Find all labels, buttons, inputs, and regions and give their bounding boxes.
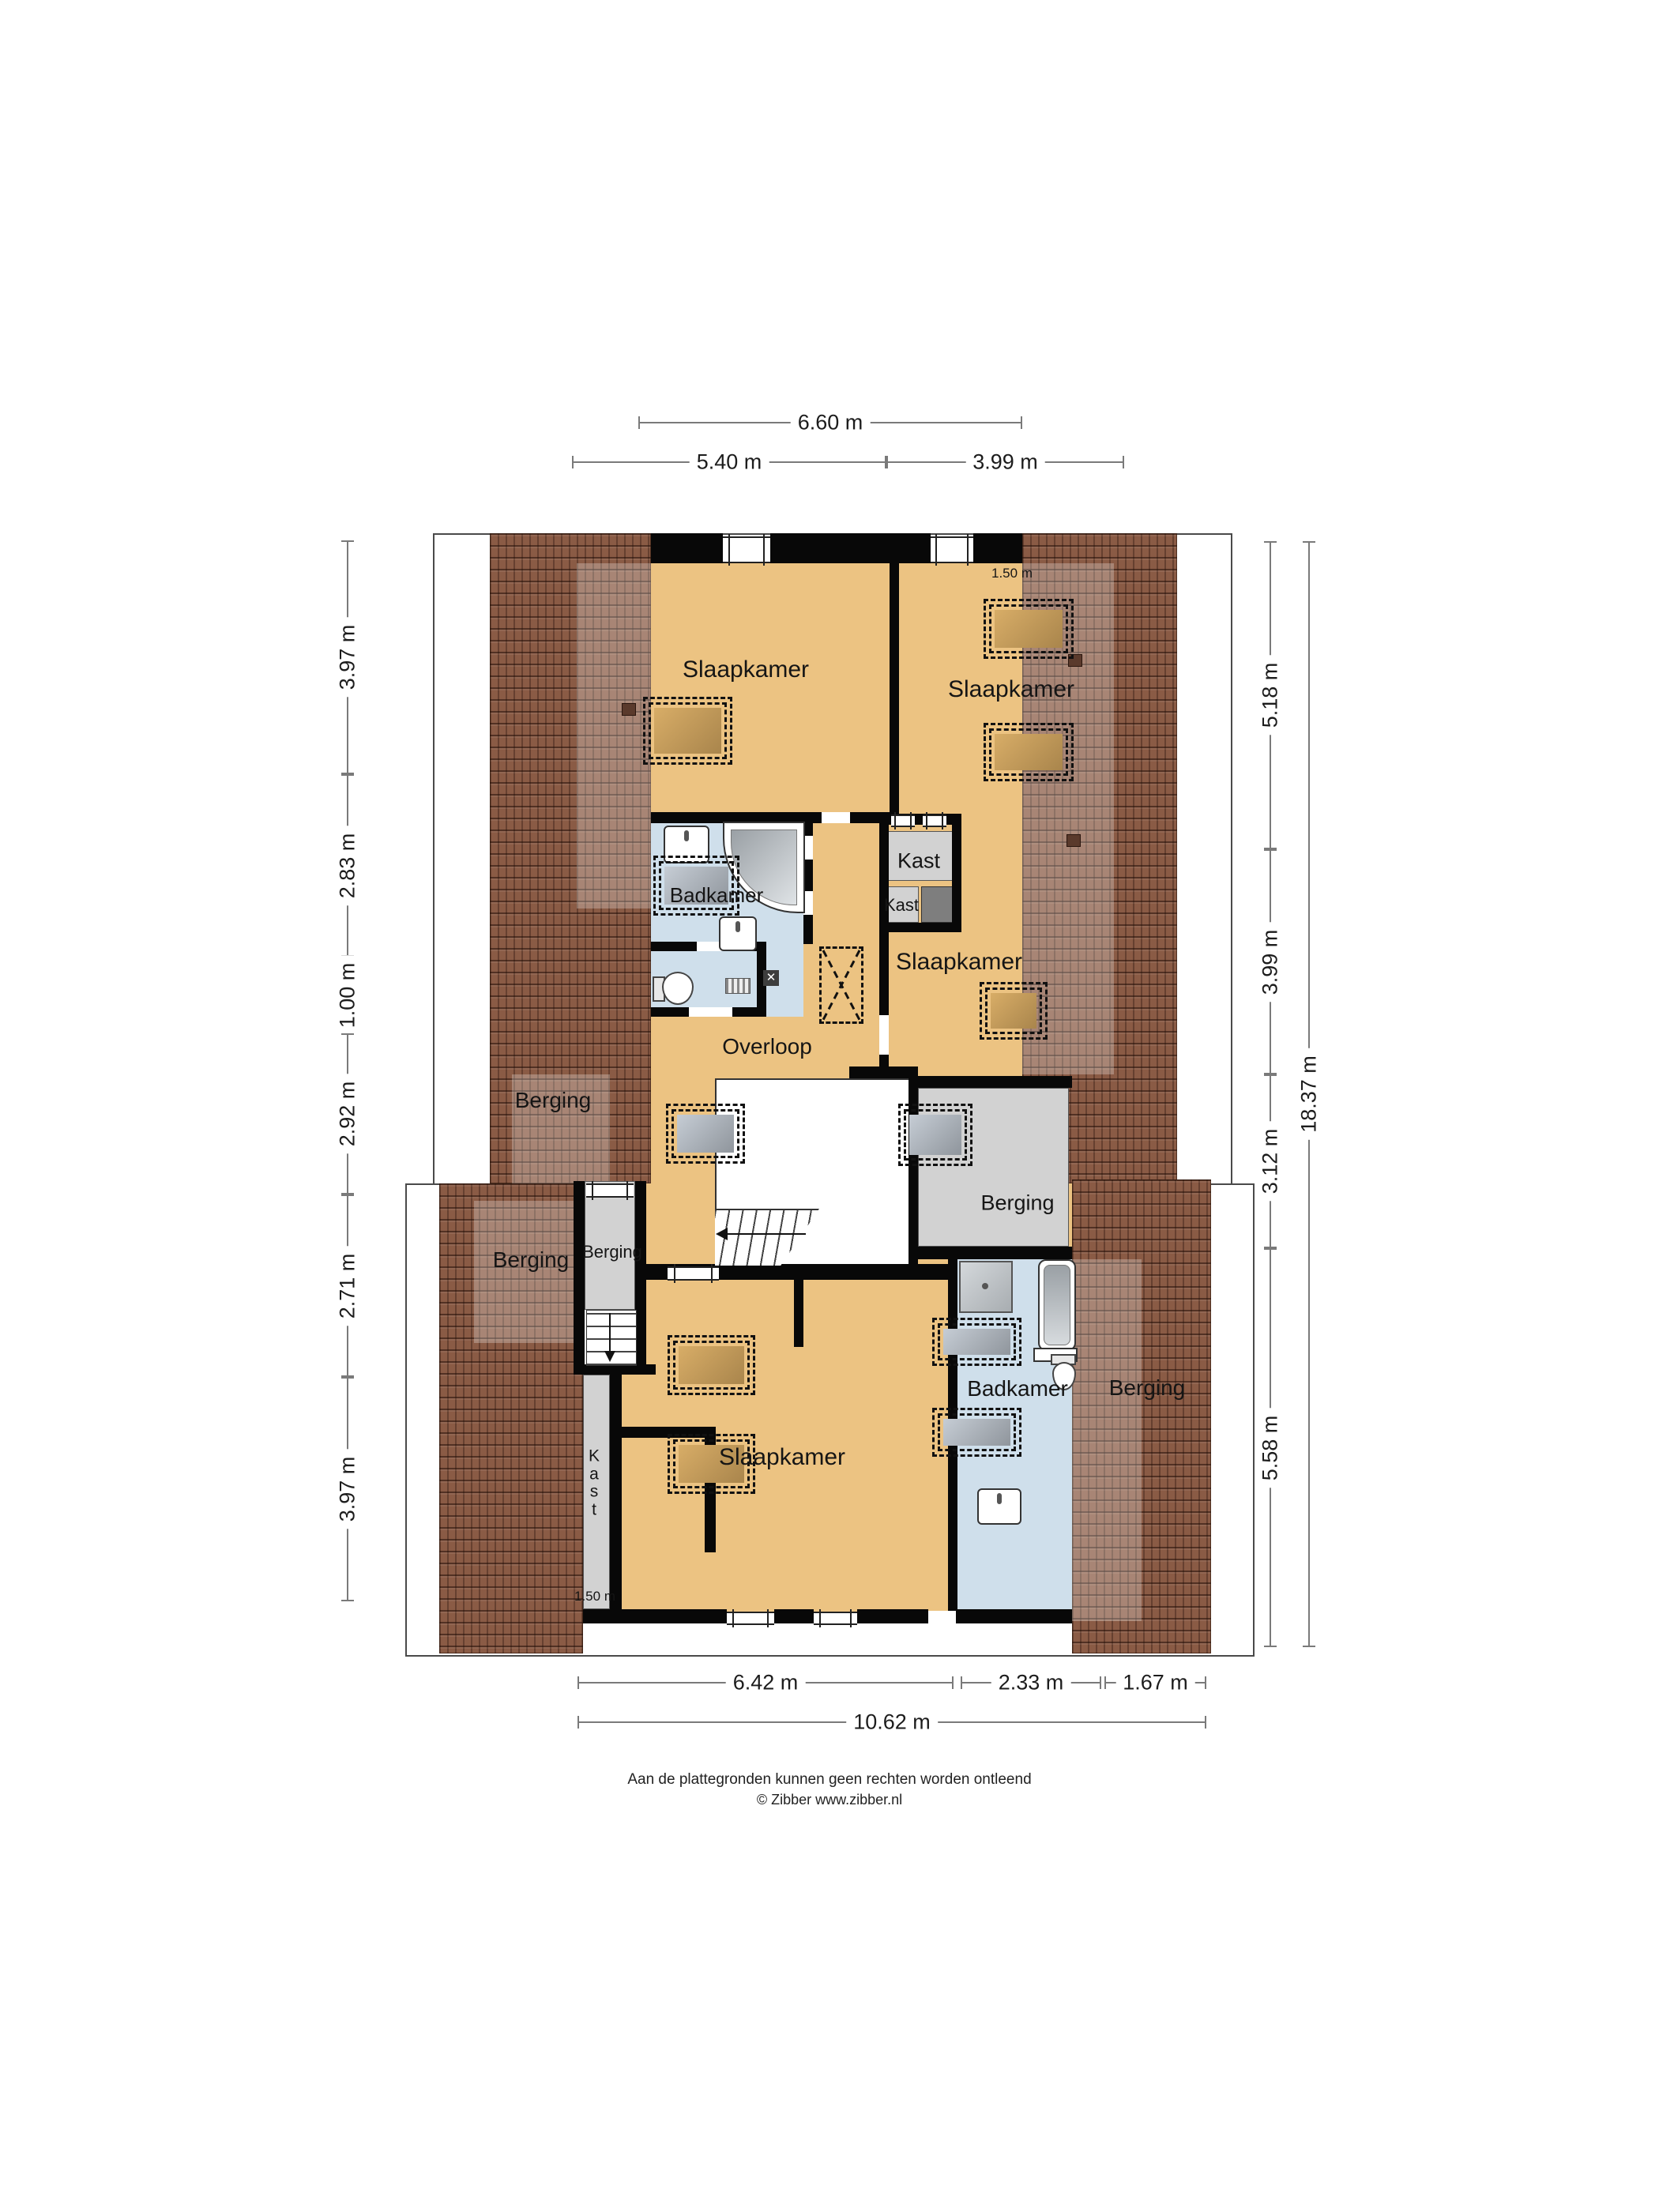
dimension-line bbox=[341, 1033, 354, 1035]
roof-window-dot bbox=[1066, 834, 1081, 847]
page: { "title": "Floor plan - attic storey", … bbox=[0, 0, 1659, 2212]
dimension-line bbox=[1100, 1676, 1101, 1689]
dimension-label: 2.92 m bbox=[336, 1074, 360, 1154]
dimension-line bbox=[1104, 1676, 1106, 1689]
room-label: Kast bbox=[884, 896, 919, 915]
window bbox=[891, 814, 915, 827]
dimension: 5.18 m bbox=[1259, 541, 1281, 849]
dimension: 2.92 m bbox=[337, 1033, 359, 1194]
wall bbox=[770, 533, 931, 563]
wall bbox=[651, 942, 697, 951]
dimension-label: 3.99 m bbox=[1258, 922, 1283, 1002]
dimension-line bbox=[638, 416, 640, 429]
sink-icon bbox=[977, 1488, 1021, 1525]
dimension-label: 10.62 m bbox=[846, 1710, 938, 1735]
tap bbox=[997, 1493, 1002, 1504]
dimension: 2.33 m bbox=[961, 1672, 1101, 1694]
dimension-line bbox=[1205, 1676, 1206, 1689]
wall bbox=[794, 1280, 803, 1347]
room-label: Berging bbox=[980, 1191, 1054, 1214]
window bbox=[668, 1266, 719, 1281]
skylight bbox=[668, 1335, 755, 1395]
floor-plan: ✕ SlaapkamerSlaapkamerSlaapkamerSlaapkam… bbox=[0, 0, 1659, 2212]
dimension: 3.97 m bbox=[337, 540, 359, 774]
room-label: Kast bbox=[897, 849, 940, 872]
room-label: 1.50 m bbox=[991, 566, 1033, 581]
dimension-label: 3.99 m bbox=[965, 450, 1045, 475]
door-opening bbox=[879, 1015, 889, 1055]
skylight bbox=[643, 697, 732, 765]
wall bbox=[908, 1247, 1072, 1259]
arrow-left-icon bbox=[716, 1228, 728, 1240]
skylight-glass bbox=[654, 708, 721, 754]
dimension-line bbox=[572, 456, 574, 468]
dimension: 5.40 m bbox=[572, 451, 886, 473]
dimension: 3.97 m bbox=[337, 1377, 359, 1601]
skylight bbox=[932, 1408, 1021, 1457]
door-opening bbox=[822, 812, 850, 823]
bathtub-basin bbox=[1044, 1265, 1070, 1345]
dimension-line bbox=[341, 774, 354, 776]
room-label: Slaapkamer bbox=[896, 950, 1022, 975]
wall bbox=[849, 1066, 918, 1078]
dimension: 2.83 m bbox=[337, 774, 359, 957]
room-label: Badkamer bbox=[670, 884, 764, 906]
skylight bbox=[984, 723, 1074, 781]
dimension-label: 6.60 m bbox=[791, 411, 871, 435]
stairs-small-arrow bbox=[609, 1313, 611, 1351]
arrow-down-icon bbox=[604, 1351, 615, 1362]
room-label: Berging bbox=[515, 1089, 592, 1112]
wall bbox=[857, 1609, 928, 1623]
dimension-label: 2.33 m bbox=[991, 1671, 1071, 1695]
fan-icon: ✕ bbox=[763, 970, 779, 986]
skylight bbox=[984, 599, 1074, 659]
roof-hatch-x bbox=[819, 946, 863, 1024]
radiator-icon bbox=[725, 978, 750, 994]
dimension-label: 1.67 m bbox=[1115, 1671, 1195, 1695]
skylight bbox=[932, 1318, 1021, 1366]
dimension: 6.42 m bbox=[577, 1672, 954, 1694]
wall bbox=[952, 814, 961, 932]
dimension: 3.99 m bbox=[1259, 849, 1281, 1074]
wall bbox=[774, 1609, 814, 1623]
room-kast-dark bbox=[921, 886, 954, 923]
dimension-label: 3.12 m bbox=[1258, 1122, 1283, 1202]
dimension-line bbox=[341, 1600, 354, 1601]
shower-drain bbox=[982, 1283, 988, 1289]
dimension-line bbox=[1303, 1646, 1315, 1647]
shower-icon bbox=[959, 1261, 1013, 1313]
dimension: 6.60 m bbox=[638, 412, 1022, 434]
dimension: 3.12 m bbox=[1259, 1074, 1281, 1248]
wall bbox=[918, 1076, 1072, 1088]
tap bbox=[684, 830, 689, 841]
room-label: K a s t bbox=[589, 1448, 600, 1520]
skylight bbox=[898, 1104, 972, 1166]
dimension-line bbox=[577, 1676, 579, 1689]
skylight bbox=[666, 1104, 745, 1164]
dimension-line bbox=[1123, 456, 1124, 468]
window bbox=[723, 536, 770, 563]
room-label: Berging bbox=[1109, 1376, 1186, 1400]
skylight-glass bbox=[677, 1115, 734, 1153]
dimension: 5.58 m bbox=[1259, 1248, 1281, 1647]
dimension-line bbox=[1264, 1074, 1277, 1076]
window bbox=[727, 1612, 774, 1625]
dimension: 1.00 m bbox=[337, 957, 359, 1033]
skylight bbox=[980, 982, 1048, 1040]
window bbox=[923, 814, 946, 827]
wall bbox=[973, 533, 1022, 563]
dimension-line bbox=[341, 540, 354, 542]
tap bbox=[735, 921, 740, 932]
dimension-line bbox=[1264, 849, 1277, 851]
wall bbox=[635, 1181, 646, 1375]
skylight-glass bbox=[943, 1329, 1010, 1355]
roof-window-dot bbox=[622, 703, 636, 716]
dimension-line bbox=[1264, 541, 1277, 543]
dimension: 3.99 m bbox=[886, 451, 1124, 473]
dimension-label: 18.37 m bbox=[1297, 1048, 1322, 1140]
dimension-label: 2.71 m bbox=[336, 1246, 360, 1326]
room-label: Slaapkamer bbox=[719, 1445, 845, 1470]
roof-low-headroom-lower-right bbox=[1072, 1259, 1142, 1621]
skylight-glass bbox=[679, 1346, 744, 1384]
bathtub-icon bbox=[1038, 1259, 1076, 1351]
window bbox=[814, 1612, 857, 1625]
room-label: 1.50 m bbox=[574, 1589, 615, 1604]
room-label: Slaapkamer bbox=[683, 657, 809, 683]
sink-icon bbox=[719, 916, 757, 951]
dimension: 10.62 m bbox=[577, 1711, 1206, 1733]
dimension: 1.67 m bbox=[1104, 1672, 1206, 1694]
skylight-glass bbox=[995, 610, 1063, 648]
skylight-glass bbox=[909, 1115, 961, 1155]
roof-low-headroom-left bbox=[577, 563, 651, 908]
dimension-label: 3.97 m bbox=[336, 618, 360, 698]
dimension-label: 5.58 m bbox=[1258, 1408, 1283, 1488]
dimension-label: 1.00 m bbox=[336, 955, 360, 1035]
wall bbox=[574, 1181, 585, 1375]
dimension-line bbox=[341, 1377, 354, 1379]
stairs-main-arrow bbox=[727, 1233, 806, 1235]
room-label: Slaapkamer bbox=[948, 677, 1074, 702]
wall bbox=[956, 1609, 1072, 1623]
wall bbox=[879, 923, 961, 932]
skylight-glass bbox=[943, 1419, 1010, 1446]
dimension-label: 2.83 m bbox=[336, 826, 360, 905]
dimension-label: 6.42 m bbox=[726, 1671, 806, 1695]
dimension-line bbox=[577, 1716, 579, 1729]
skylight-glass bbox=[991, 993, 1036, 1029]
wall bbox=[651, 533, 723, 563]
door-opening bbox=[928, 1611, 956, 1622]
dimension: 2.71 m bbox=[337, 1194, 359, 1377]
dimension-line bbox=[1021, 416, 1022, 429]
x-cross-icon bbox=[822, 949, 861, 1021]
dimension-line bbox=[1303, 541, 1315, 543]
door-opening bbox=[689, 1007, 732, 1017]
dimension-line bbox=[1264, 1646, 1277, 1647]
skylight-glass bbox=[995, 734, 1063, 770]
dimension-line bbox=[886, 456, 888, 468]
room-label: Overloop bbox=[722, 1035, 812, 1059]
dimension-label: 5.40 m bbox=[690, 450, 769, 475]
wall bbox=[610, 1375, 622, 1609]
dimension-line bbox=[1264, 1248, 1277, 1250]
footer-copyright: © Zibber www.zibber.nl bbox=[0, 1792, 1659, 1808]
wall bbox=[583, 1609, 727, 1623]
room-label: Badkamer bbox=[967, 1377, 1068, 1401]
wall bbox=[890, 563, 899, 818]
dimension-label: 3.97 m bbox=[336, 1450, 360, 1529]
room-label: Berging bbox=[582, 1243, 642, 1262]
footer-disclaimer: Aan de plattegronden kunnen geen rechten… bbox=[0, 1771, 1659, 1789]
window bbox=[931, 536, 973, 563]
dimension: 18.37 m bbox=[1298, 541, 1320, 1647]
dimension-line bbox=[952, 1676, 954, 1689]
dimension-line bbox=[341, 1194, 354, 1196]
dimension-label: 5.18 m bbox=[1258, 656, 1283, 735]
window bbox=[586, 1183, 634, 1198]
dimension-line bbox=[1205, 1716, 1206, 1729]
dimension-line bbox=[961, 1676, 962, 1689]
room-label: Berging bbox=[493, 1248, 570, 1272]
